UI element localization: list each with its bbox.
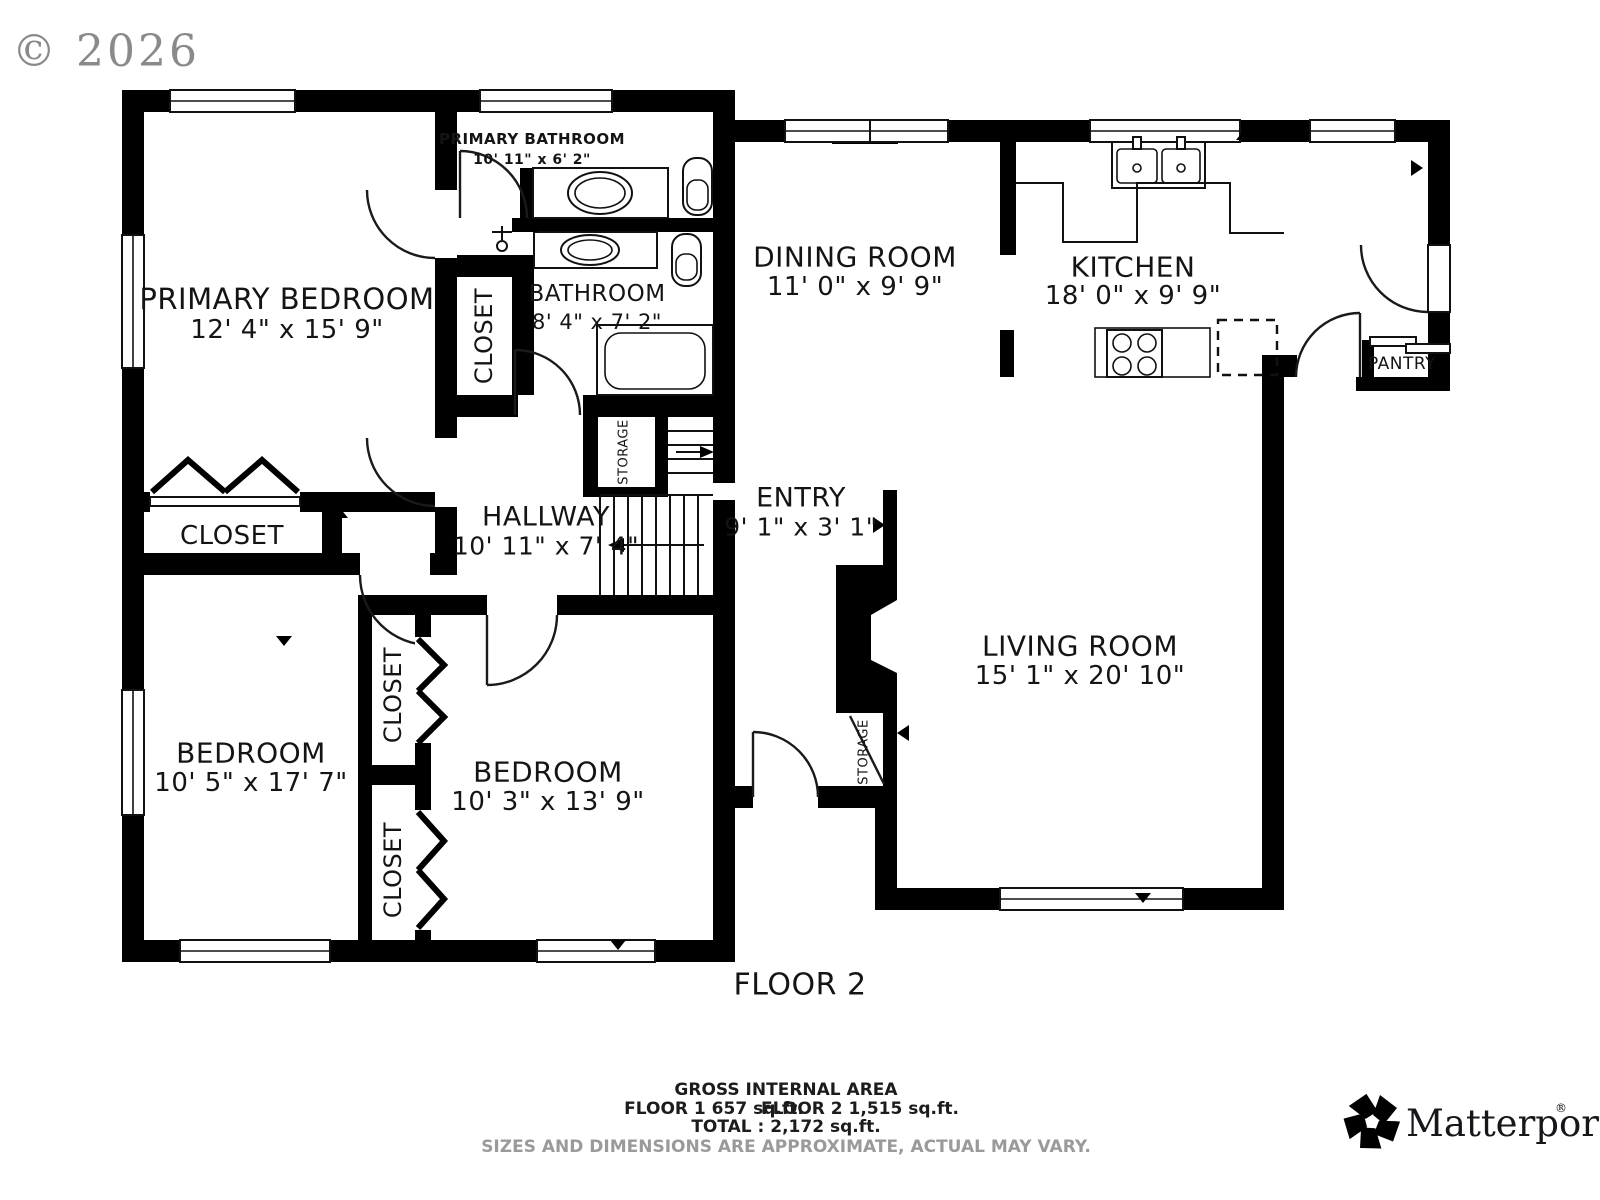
faucet-icon bbox=[492, 226, 512, 251]
window bbox=[537, 940, 655, 962]
floor-plan-page: © 2026 bbox=[0, 0, 1600, 1200]
room-label-dining-room: DINING ROOM bbox=[753, 241, 957, 274]
room-dims-dining-room: 11' 0" x 9' 9" bbox=[767, 272, 943, 302]
window bbox=[180, 940, 330, 962]
wall bbox=[1000, 142, 1016, 255]
room-label-primary-bathroom: PRIMARY BATHROOM bbox=[439, 130, 625, 148]
window bbox=[785, 120, 948, 142]
door-swing bbox=[487, 615, 557, 685]
arrow-icon bbox=[1411, 160, 1423, 176]
door-opening bbox=[518, 395, 583, 417]
door-opening bbox=[753, 786, 818, 808]
primary-bath-vanity bbox=[533, 168, 668, 218]
matterport-icon bbox=[1336, 1090, 1405, 1159]
door-opening bbox=[435, 438, 457, 507]
room-dims-primary-bathroom: 10' 11" x 6' 2" bbox=[473, 152, 591, 168]
room-dims-hallway: 10' 11" x 7' 4" bbox=[453, 532, 639, 561]
footer-total-area: TOTAL : 2,172 sq.ft. bbox=[691, 1117, 880, 1137]
room-label-kitchen: KITCHEN bbox=[1071, 251, 1196, 284]
room-dims-kitchen: 18' 0" x 9' 9" bbox=[1045, 281, 1221, 311]
wall bbox=[875, 797, 897, 910]
wall bbox=[1262, 355, 1284, 910]
door-opening bbox=[360, 553, 430, 575]
door-swing bbox=[1361, 245, 1428, 312]
arrow-icon bbox=[276, 636, 292, 646]
floor-title: FLOOR 2 bbox=[733, 968, 866, 1003]
room-label-bedroom-center: BEDROOM bbox=[473, 756, 623, 789]
bathroom-vanity bbox=[534, 232, 657, 268]
window bbox=[122, 690, 144, 815]
door-swing bbox=[367, 190, 435, 258]
closet-label: CLOSET bbox=[379, 647, 407, 743]
window bbox=[1310, 120, 1395, 142]
room-label-bedroom-left: BEDROOM bbox=[176, 737, 326, 770]
storage-label: STORAGE bbox=[857, 719, 872, 784]
wall bbox=[512, 218, 735, 232]
matterport-wordmark: Matterport bbox=[1406, 1102, 1600, 1145]
wall bbox=[883, 490, 897, 570]
kitchen-sink bbox=[1112, 137, 1205, 188]
closet-label: CLOSET bbox=[379, 822, 407, 918]
arrow-icon bbox=[897, 725, 909, 741]
closet-label: CLOSET bbox=[180, 521, 284, 551]
room-dims-bathroom: 8' 4" x 7' 2" bbox=[532, 310, 662, 334]
room-label-bathroom: BATHROOM bbox=[528, 281, 665, 307]
storage-label: STORAGE bbox=[617, 419, 632, 484]
sliding-door-rail bbox=[1406, 344, 1450, 353]
footer-gross-title: GROSS INTERNAL AREA bbox=[674, 1080, 898, 1100]
room-dims-primary-bedroom: 12' 4" x 15' 9" bbox=[190, 315, 383, 345]
door-opening bbox=[487, 595, 557, 615]
window bbox=[1090, 120, 1240, 142]
window bbox=[480, 90, 612, 112]
kitchen-counter-edge bbox=[1016, 183, 1284, 242]
bifold-door bbox=[225, 460, 298, 492]
door-opening bbox=[435, 190, 457, 258]
closet-label: CLOSET bbox=[470, 288, 498, 384]
wall bbox=[583, 395, 598, 497]
room-label-hallway: HALLWAY bbox=[482, 502, 610, 533]
room-dims-bedroom-left: 10' 5" x 17' 7" bbox=[154, 768, 347, 798]
bathtub bbox=[597, 325, 713, 395]
room-label-entry: ENTRY bbox=[756, 483, 846, 514]
window bbox=[170, 90, 295, 112]
registered-mark-icon: ® bbox=[1555, 1101, 1567, 1115]
copyright-watermark: © 2026 bbox=[12, 26, 200, 77]
closet-track bbox=[150, 497, 300, 506]
footer-floor2-area: FLOOR 2 1,515 sq.ft. bbox=[761, 1099, 959, 1119]
wall bbox=[883, 713, 897, 797]
room-label-primary-bedroom: PRIMARY BEDROOM bbox=[139, 282, 434, 316]
primary-bath-toilet bbox=[683, 158, 712, 215]
room-dims-entry: 9' 1" x 3' 1" bbox=[724, 513, 877, 542]
stove bbox=[1107, 330, 1162, 377]
wall bbox=[655, 417, 668, 497]
footer-disclaimer: SIZES AND DIMENSIONS ARE APPROXIMATE, AC… bbox=[481, 1137, 1091, 1157]
room-label-living-room: LIVING ROOM bbox=[982, 630, 1178, 663]
bathroom-toilet bbox=[672, 234, 701, 286]
door-leaf bbox=[1428, 245, 1450, 312]
room-dims-living-room: 15' 1" x 20' 10" bbox=[975, 661, 1185, 691]
footer: GROSS INTERNAL AREA FLOOR 1 657 sq.ft. F… bbox=[481, 1080, 1091, 1157]
door-opening bbox=[1297, 355, 1360, 377]
floor-plan-canvas: © 2026 bbox=[0, 0, 1600, 1200]
window bbox=[1000, 888, 1183, 910]
room-label-pantry: PANTRY bbox=[1368, 354, 1436, 374]
stair-arrow-icon bbox=[700, 446, 714, 458]
bifold-door bbox=[152, 460, 225, 492]
wall bbox=[1000, 330, 1014, 377]
room-dims-bedroom-center: 10' 3" x 13' 9" bbox=[451, 787, 644, 817]
stair-opening bbox=[713, 483, 735, 500]
matterport-logo: Matterport ® bbox=[1336, 1090, 1600, 1159]
wall bbox=[358, 765, 431, 785]
wall bbox=[122, 90, 144, 962]
